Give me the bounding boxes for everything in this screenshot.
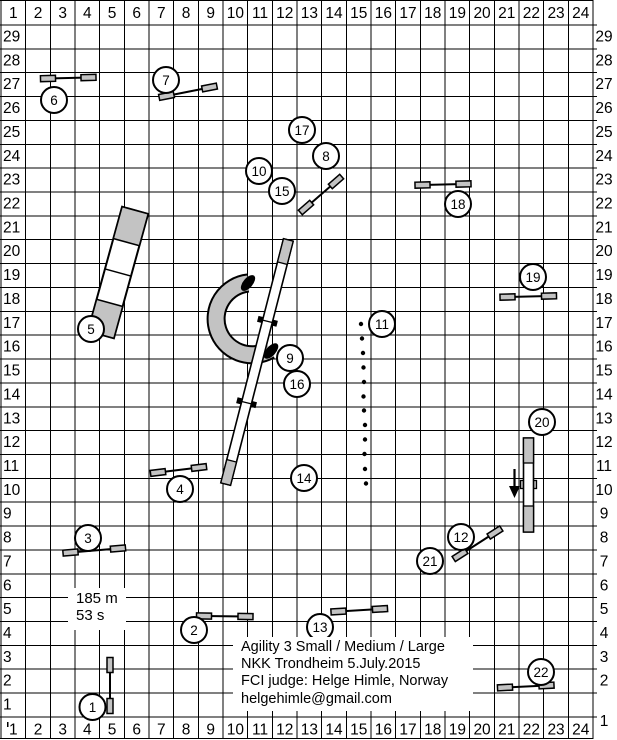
jump-wing — [415, 182, 430, 188]
col-label-top: 22 — [523, 5, 540, 22]
svg-text:10: 10 — [251, 164, 266, 179]
jump-6 — [40, 74, 96, 81]
row-label-left: 22 — [3, 196, 20, 213]
jump-wing — [107, 658, 113, 673]
col-label-top: 18 — [424, 5, 441, 22]
obstacle-number-20: 20 — [529, 409, 555, 435]
svg-text:15: 15 — [274, 184, 289, 199]
col-label-bottom: 15 — [350, 722, 367, 739]
course-stats: 185 m 53 s — [68, 588, 126, 630]
row-label-right: 25 — [595, 124, 612, 141]
col-label-bottom: 4 — [83, 722, 92, 739]
col-label-top: 24 — [572, 5, 590, 22]
row-label-right: 21 — [595, 219, 612, 236]
col-label-top: 8 — [182, 5, 191, 22]
jump-13 — [331, 606, 388, 615]
obstacle-number-4: 4 — [167, 476, 193, 502]
col-label-bottom: 7 — [157, 722, 166, 739]
obstacle-number-18: 18 — [445, 191, 471, 217]
jump-wing — [372, 606, 387, 613]
agility-course-map-page: 1122334455667788991010111112121313141415… — [0, 0, 617, 740]
col-label-top: 12 — [276, 5, 293, 22]
col-label-top: 13 — [301, 5, 318, 22]
row-label-right: 6 — [600, 577, 609, 594]
row-label-right: 10 — [595, 482, 613, 499]
col-label-bottom: 22 — [523, 722, 540, 739]
svg-text:2: 2 — [190, 623, 198, 638]
row-label-right: 23 — [595, 172, 612, 189]
obstacle-number-16: 16 — [284, 371, 310, 397]
col-label-top: 23 — [547, 5, 564, 22]
svg-text:8: 8 — [322, 149, 330, 164]
row-label-left: 23 — [3, 172, 20, 189]
svg-text:12: 12 — [453, 530, 468, 545]
col-label-bottom: 8 — [182, 722, 191, 739]
row-label-right: 17 — [595, 315, 612, 332]
col-label-top: 20 — [473, 5, 491, 22]
col-label-top: 7 — [157, 5, 166, 22]
svg-text:21: 21 — [422, 554, 437, 569]
jump-wing — [202, 83, 218, 92]
weave-pole — [359, 322, 363, 326]
svg-text:18: 18 — [450, 197, 465, 212]
jump-2 — [196, 613, 253, 620]
row-label-left: 14 — [3, 386, 21, 403]
svg-text:9: 9 — [286, 351, 294, 366]
row-label-right: 1 — [600, 713, 609, 730]
col-label-bottom: 12 — [276, 722, 293, 739]
course-title: Agility 3 Small / Medium / Large — [241, 639, 473, 656]
col-label-bottom: 9 — [206, 722, 215, 739]
col-label-top: 10 — [227, 5, 245, 22]
weave-pole — [361, 365, 365, 369]
obstacle-number-2: 2 — [181, 617, 207, 643]
jump-wing — [81, 74, 96, 80]
row-label-left: 11 — [3, 458, 19, 475]
row-label-left: 1 — [3, 697, 12, 714]
obstacle-number-5: 5 — [78, 316, 104, 342]
row-label-left: 3 — [3, 649, 12, 666]
jump-wing — [487, 526, 503, 539]
row-label-right: 18 — [595, 291, 612, 308]
row-label-left: 12 — [3, 434, 20, 451]
row-label-left: 13 — [3, 410, 20, 427]
row-label-right: 13 — [595, 410, 612, 427]
col-label-bottom: 2 — [34, 722, 43, 739]
obstacle-number-15: 15 — [269, 178, 295, 204]
row-label-right: 22 — [595, 196, 612, 213]
obstacle-number-8: 8 — [313, 143, 339, 169]
row-label-right: 15 — [595, 363, 612, 380]
col-label-bottom: 19 — [449, 722, 466, 739]
jump-wing — [456, 181, 471, 187]
row-label-right: 2 — [600, 673, 609, 690]
row-label-left: 5 — [3, 601, 12, 618]
jump-wing — [150, 469, 166, 477]
weave-pole — [362, 452, 366, 456]
col-label-top: 14 — [325, 5, 343, 22]
svg-text:3: 3 — [84, 531, 92, 546]
svg-text:16: 16 — [289, 377, 304, 392]
row-label-right: 9 — [600, 506, 609, 523]
row-label-left: 28 — [3, 52, 20, 69]
jump-8-10-15-17 — [298, 174, 343, 214]
col-label-top: 6 — [132, 5, 141, 22]
jump-wing — [63, 549, 78, 556]
weave-pole — [361, 394, 365, 398]
row-label-left: 24 — [3, 148, 21, 165]
col-label-top: 1 — [9, 5, 18, 22]
row-label-right: 7 — [600, 553, 609, 570]
row-label-right: 20 — [595, 243, 613, 260]
jump-wing — [331, 608, 346, 615]
direction-arrow-head — [509, 486, 520, 498]
col-label-top: 5 — [108, 5, 117, 22]
col-label-bottom: 23 — [547, 722, 564, 739]
row-label-left: 21 — [3, 219, 20, 236]
svg-text:20: 20 — [534, 415, 549, 430]
row-label-left: 18 — [3, 291, 20, 308]
row-label-right: 24 — [595, 148, 613, 165]
row-label-left: 27 — [3, 76, 20, 93]
row-label-left: 4 — [3, 625, 12, 642]
row-label-right: 5 — [600, 601, 609, 618]
jump-wing — [497, 684, 512, 691]
contact-zone — [524, 438, 534, 463]
row-label-left: 20 — [3, 243, 21, 260]
svg-text:5: 5 — [87, 322, 95, 337]
col-label-bottom: 20 — [473, 722, 491, 739]
svg-text:6: 6 — [50, 93, 58, 108]
row-label-right: 8 — [600, 530, 609, 547]
row-label-right: 26 — [595, 100, 612, 117]
col-label-bottom: 10 — [227, 722, 245, 739]
row-label-right: 16 — [595, 339, 612, 356]
col-label-top: 2 — [34, 5, 43, 22]
obstacle-number-6: 6 — [41, 87, 67, 113]
row-label-right: 28 — [595, 52, 612, 69]
col-label-bottom: 16 — [375, 722, 392, 739]
jump-18 — [415, 181, 471, 188]
weave-pole — [360, 336, 364, 340]
obstacle-number-22: 22 — [528, 659, 554, 685]
obstacle-number-11: 11 — [369, 311, 395, 337]
row-label-left: 7 — [3, 553, 12, 570]
row-label-left: 29 — [3, 29, 20, 46]
course-event: NKK Trondheim 5.July.2015 — [241, 656, 473, 673]
jump-wing — [328, 174, 343, 188]
obstacle-number-14: 14 — [291, 465, 317, 491]
course-info: Agility 3 Small / Medium / Large NKK Tro… — [233, 637, 473, 711]
row-label-right: 19 — [595, 267, 612, 284]
col-label-top: 15 — [350, 5, 367, 22]
col-label-bottom: 14 — [325, 722, 343, 739]
col-label-bottom: 24 — [572, 722, 590, 739]
weave-pole — [363, 467, 367, 471]
weave-poles-11 — [359, 322, 368, 486]
course-distance: 185 m — [76, 591, 126, 608]
row-label-left: 25 — [3, 124, 20, 141]
col-label-bottom: 1 — [9, 722, 18, 739]
col-label-bottom: 5 — [108, 722, 117, 739]
row-label-left: 2 — [3, 673, 12, 690]
obstacle-number-12: 12 — [448, 524, 474, 550]
svg-text:4: 4 — [176, 482, 184, 497]
col-label-top: 17 — [399, 5, 416, 22]
weave-pole — [363, 423, 367, 427]
weave-pole — [361, 351, 365, 355]
jump-wing — [110, 545, 125, 552]
jump-1 — [107, 658, 113, 714]
seesaw-20 — [509, 438, 537, 532]
row-label-right: 4 — [600, 625, 609, 642]
row-label-left: 8 — [3, 530, 12, 547]
svg-text:1: 1 — [89, 700, 97, 715]
svg-text:17: 17 — [294, 123, 309, 138]
col-label-bottom: 18 — [424, 722, 441, 739]
jump-19 — [500, 293, 557, 300]
obstacle-number-21: 21 — [417, 548, 443, 574]
col-label-top: 3 — [58, 5, 67, 22]
row-label-right: 27 — [595, 76, 612, 93]
col-label-bottom: 21 — [498, 722, 515, 739]
obstacle-number-7: 7 — [153, 67, 179, 93]
row-label-right: 14 — [595, 386, 613, 403]
jump-wing — [541, 293, 556, 299]
col-label-top: 4 — [83, 5, 92, 22]
col-label-top: 16 — [375, 5, 392, 22]
row-label-left: 26 — [3, 100, 20, 117]
col-label-top: 11 — [252, 5, 268, 22]
col-label-bottom: 13 — [301, 722, 318, 739]
svg-text:11: 11 — [375, 317, 389, 332]
jump-wing — [298, 200, 313, 214]
weave-pole — [362, 408, 366, 412]
col-label-top: 21 — [498, 5, 515, 22]
weave-pole — [362, 380, 366, 384]
svg-text:19: 19 — [525, 270, 540, 285]
weave-pole — [363, 437, 367, 441]
col-label-bottom: 11 — [252, 722, 268, 739]
svg-text:22: 22 — [533, 665, 548, 680]
col-label-bottom: 17 — [399, 722, 416, 739]
weave-pole — [364, 481, 368, 485]
col-label-top: 9 — [206, 5, 215, 22]
row-label-right: 11 — [596, 458, 612, 475]
col-label-bottom: 6 — [132, 722, 141, 739]
obstacle-number-9: 9 — [277, 345, 303, 371]
course-email: helgehimle@gmail.com — [241, 691, 473, 708]
obstacle-number-1: 1 — [80, 694, 106, 720]
jump-wing — [107, 699, 113, 714]
obstacle-number-3: 3 — [75, 525, 101, 551]
row-label-left: 17 — [3, 315, 20, 332]
row-label-right: 29 — [595, 29, 612, 46]
jump-wing — [500, 294, 515, 300]
svg-text:7: 7 — [162, 73, 170, 88]
row-label-left: 19 — [3, 267, 20, 284]
contact-zone — [278, 239, 294, 265]
row-label-left: 10 — [3, 482, 21, 499]
contact-zone — [524, 506, 534, 532]
obstacle-number-19: 19 — [520, 264, 546, 290]
jump-wing — [40, 75, 55, 81]
course-judge: FCI judge: Helge Himle, Norway — [241, 673, 473, 690]
row-label-left: 9 — [3, 506, 12, 523]
row-label-left: 6 — [3, 577, 12, 594]
col-label-bottom: 3 — [58, 722, 67, 739]
svg-text:13: 13 — [312, 620, 327, 635]
svg-text:14: 14 — [296, 471, 312, 486]
jump-wing — [238, 613, 253, 619]
row-label-left: 15 — [3, 363, 20, 380]
row-label-right: 3 — [600, 649, 609, 666]
col-label-top: 19 — [449, 5, 466, 22]
course-time: 53 s — [76, 608, 126, 625]
jump-wing — [191, 464, 207, 472]
obstacle-number-17: 17 — [289, 117, 315, 143]
row-label-right: 12 — [595, 434, 612, 451]
row-label-left: 16 — [3, 339, 20, 356]
obstacle-number-10: 10 — [246, 158, 272, 184]
